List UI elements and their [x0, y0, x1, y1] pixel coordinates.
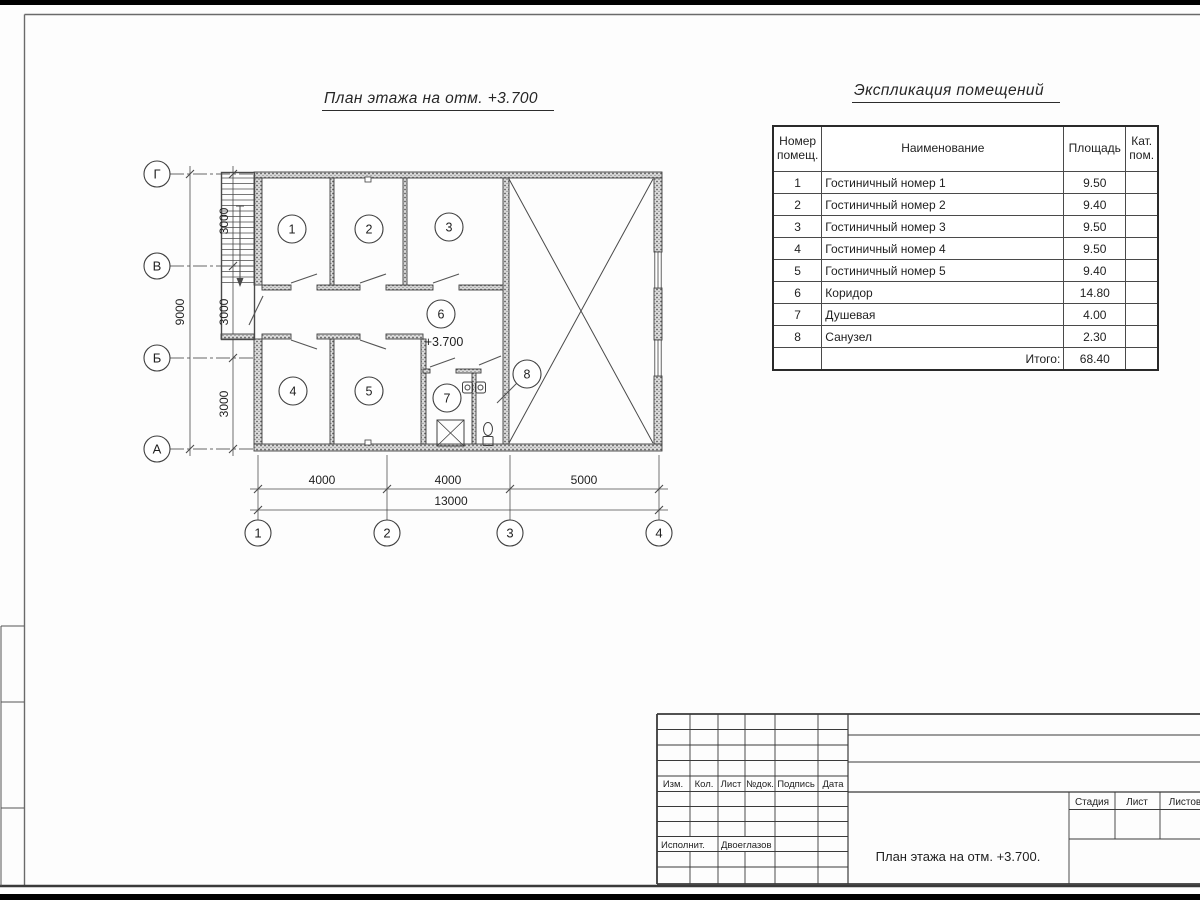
room-number-1: 1 [289, 223, 296, 237]
void-cross [509, 179, 653, 443]
room-number-7: 7 [444, 392, 451, 406]
room-number-3: 3 [446, 221, 453, 235]
dim-4000-a: 4000 [309, 473, 336, 487]
table-row: 2 Гостиничный номер 2 9.40 [773, 194, 1158, 216]
room-name: Санузел [822, 326, 1064, 348]
room-cat [1126, 304, 1158, 326]
room-cat [1126, 238, 1158, 260]
room-area: 4.00 [1064, 304, 1126, 326]
schedule-title-text: Экспликация помещений [852, 82, 1060, 103]
tb-col-ndok: №док. [746, 779, 774, 790]
room-cat [1126, 172, 1158, 194]
room-area: 9.50 [1064, 172, 1126, 194]
axis-label-3: 3 [506, 526, 513, 541]
table-row: 3 Гостиничный номер 3 9.50 [773, 216, 1158, 238]
room-cat [1126, 326, 1158, 348]
tb-stage-label: Стадия [1075, 797, 1109, 808]
room-num: 7 [773, 304, 822, 326]
dim-4000-b: 4000 [435, 473, 462, 487]
dim-9000: 9000 [173, 298, 187, 325]
room-number-6: 6 [438, 308, 445, 322]
toilet-icon [483, 423, 493, 446]
schedule-col-cat: Кат. пом. [1126, 126, 1158, 172]
schedule-col-area: Площадь [1064, 126, 1126, 172]
total-label: Итого: [822, 348, 1064, 371]
table-row: 7 Душевая 4.00 [773, 304, 1158, 326]
axis-label-v: В [153, 259, 162, 274]
room-name: Гостиничный номер 5 [822, 260, 1064, 282]
total-area: 68.40 [1064, 348, 1126, 371]
axis-label-g: Г [153, 167, 160, 182]
room-cat [1126, 282, 1158, 304]
room-num: 4 [773, 238, 822, 260]
room-cat [1126, 260, 1158, 282]
dim-5000: 5000 [571, 473, 598, 487]
room-num: 2 [773, 194, 822, 216]
table-row: 1 Гостиничный номер 1 9.50 [773, 172, 1158, 194]
dim-3000-c: 3000 [217, 390, 231, 417]
room-cat [1126, 216, 1158, 238]
room-number-2: 2 [366, 223, 373, 237]
tb-executor-label: Исполнит. [661, 840, 705, 851]
table-row: 4 Гостиничный номер 4 9.50 [773, 238, 1158, 260]
axis-label-1: 1 [254, 526, 261, 541]
room-schedule-table: Номер помещ. Наименование Площадь Кат. п… [772, 125, 1159, 371]
dim-3000-b: 3000 [217, 298, 231, 325]
tb-doc-title: План этажа на отм. +3.700. [876, 849, 1041, 864]
room-area: 9.40 [1064, 194, 1126, 216]
tb-sheets-label: Листов [1169, 797, 1200, 808]
level-mark: +3.700 [425, 335, 464, 349]
axis-label-2: 2 [383, 526, 390, 541]
dim-13000: 13000 [434, 494, 468, 508]
tb-col-data: Дата [822, 779, 844, 790]
axis-label-a: А [153, 442, 162, 457]
room-name: Гостиничный номер 1 [822, 172, 1064, 194]
room-area: 14.80 [1064, 282, 1126, 304]
room-name: Гостиничный номер 3 [822, 216, 1064, 238]
room-name: Гостиничный номер 4 [822, 238, 1064, 260]
room-name: Душевая [822, 304, 1064, 326]
room-name: Гостиничный номер 2 [822, 194, 1064, 216]
axis-lines [170, 174, 659, 520]
schedule-total-row: Итого: 68.40 [773, 348, 1158, 371]
room-name: Коридор [822, 282, 1064, 304]
room-area: 9.50 [1064, 238, 1126, 260]
tb-sheet-label: Лист [1126, 797, 1148, 808]
room-area: 9.50 [1064, 216, 1126, 238]
room-num: 8 [773, 326, 822, 348]
axis-label-b: Б [153, 351, 162, 366]
tb-col-kol: Кол. [695, 779, 714, 790]
stair-direction-arrow [236, 206, 244, 280]
room-cat [1126, 194, 1158, 216]
dim-3000-a: 3000 [217, 207, 231, 234]
room-num: 1 [773, 172, 822, 194]
room-area: 9.40 [1064, 260, 1126, 282]
table-row: 8 Санузел 2.30 [773, 326, 1158, 348]
room-num: 3 [773, 216, 822, 238]
room-bubbles [278, 213, 541, 412]
floor-plan: Г В Б А 1 2 3 4 1 2 3 4 5 6 7 8 +3.700 [144, 161, 672, 546]
tb-col-izm: Изм. [663, 779, 683, 790]
room-number-5: 5 [366, 385, 373, 399]
tb-col-list: Лист [721, 779, 742, 790]
plan-title-text: План этажа на отм. +3.700 [322, 90, 554, 111]
margin-boxes [1, 626, 24, 886]
schedule-col-number: Номер помещ. [773, 126, 822, 172]
tb-col-podpis: Подпись [777, 779, 815, 790]
shower-tray-icon [437, 420, 464, 446]
table-row: 5 Гостиничный номер 5 9.40 [773, 260, 1158, 282]
room-area: 2.30 [1064, 326, 1126, 348]
plan-title: План этажа на отм. +3.700 [278, 90, 598, 111]
schedule-header-row: Номер помещ. Наименование Площадь Кат. п… [773, 126, 1158, 172]
table-row: 6 Коридор 14.80 [773, 282, 1158, 304]
schedule-title: Экспликация помещений [795, 82, 1117, 103]
room-num: 6 [773, 282, 822, 304]
room-number-8: 8 [524, 368, 531, 382]
room-num: 5 [773, 260, 822, 282]
room-number-4: 4 [290, 385, 297, 399]
tb-executor-name: Двоеглазов [721, 840, 772, 851]
schedule-col-name: Наименование [822, 126, 1064, 172]
axis-label-4: 4 [655, 526, 662, 541]
